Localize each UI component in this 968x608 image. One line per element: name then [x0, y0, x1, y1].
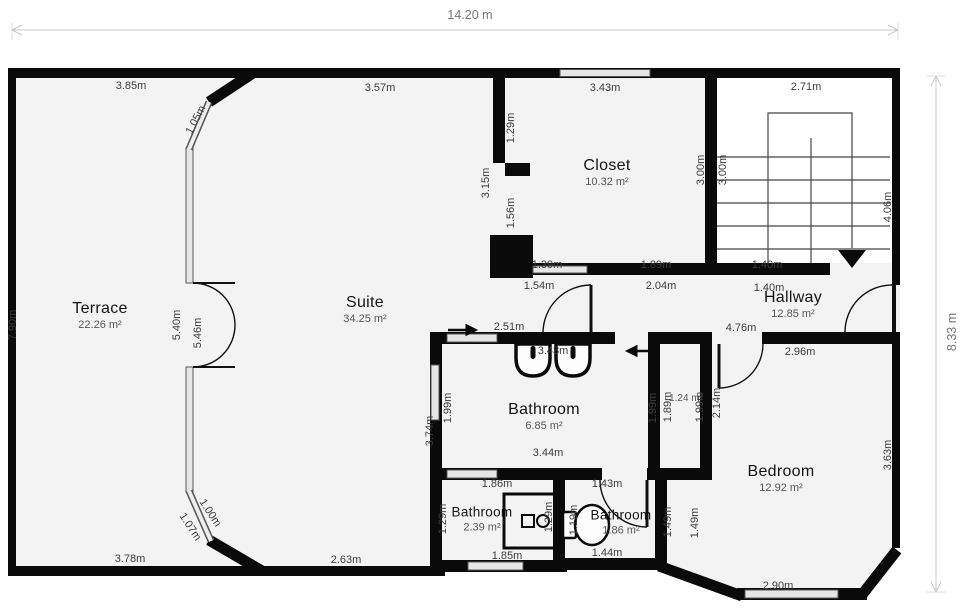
overall-width-label: 14.20 m [447, 8, 492, 22]
room-label-terrace: Terrace22.26 m² [72, 299, 127, 333]
wall [505, 163, 530, 176]
dimension-label: 3.85m [116, 80, 147, 92]
room-area: 6.85 m² [508, 420, 580, 434]
wall [8, 68, 258, 78]
wall [762, 332, 900, 344]
dimension-label: 1.85m [492, 550, 523, 562]
dimension-label: 1.29m [437, 504, 449, 535]
room-area: 12.92 m² [747, 482, 814, 496]
room-name: Suite [343, 293, 386, 313]
room-label-bathroom: Bathroom6.85 m² [508, 400, 580, 434]
dimension-label: 1.99m [647, 393, 659, 424]
dimension-label: 3.00m [717, 155, 729, 186]
faucet-icon [531, 346, 536, 359]
dimension-label: 3.43m [538, 345, 569, 357]
dimension-label: 1.39m [532, 259, 563, 271]
dimension-label: 2.14m [711, 388, 723, 419]
dimension-label: 3.74m [424, 416, 436, 447]
wall [255, 566, 445, 576]
dimension-label: 5.40m [171, 310, 183, 341]
dimension-label: 3.63m [882, 440, 894, 471]
room-label-closet: Closet10.32 m² [583, 156, 630, 190]
faucet-icon [571, 346, 576, 359]
wall [553, 558, 667, 570]
dimension-label: 2.63m [331, 554, 362, 566]
dimension-label: 1.40m [754, 282, 785, 294]
room-name: Terrace [72, 299, 127, 319]
dimension-label: 1.86m [482, 478, 513, 490]
dimension-label: 1.89m [641, 259, 672, 271]
dimension-label: 1.19m [568, 505, 580, 536]
dimension-label: 3.78m [115, 553, 146, 565]
window [560, 70, 650, 77]
dimension-label: 4.76m [726, 322, 757, 334]
room-area: 34.25 m² [343, 313, 386, 327]
dimension-label: 2.04m [646, 280, 677, 292]
dimension-label: 1.99m [442, 393, 454, 424]
room-name: Bedroom [747, 462, 814, 482]
dimension-label: 3.15m [480, 168, 492, 199]
window [468, 562, 523, 570]
dimension-label: 1.29m [543, 502, 555, 533]
dimension-label: 2.51m [494, 321, 525, 333]
dimension-label: 3.57m [365, 82, 396, 94]
window-wall [186, 148, 193, 283]
dimension-label: 3.43m [590, 82, 621, 94]
dimension-label: 1.99m [694, 392, 706, 423]
dimension-label: 4.06m [882, 192, 894, 223]
dimension-label: 1.43m [592, 478, 623, 490]
dimension-label: 1.44m [592, 547, 623, 559]
dimension-label: 2.90m [763, 580, 794, 592]
room-area: 1.86 m² [591, 525, 652, 539]
room-name: Bathroom [452, 505, 513, 522]
dimension-label: 3.44m [533, 447, 564, 459]
room-area: 12.85 m² [764, 308, 822, 322]
wall [493, 78, 505, 163]
window-wall [186, 367, 193, 492]
dimension-label: 1.40m [752, 259, 783, 271]
stairwell-floor [717, 78, 892, 263]
dimension-label: 1.89m [662, 392, 674, 423]
dimension-label: 1.49m [689, 508, 701, 539]
room-label-bedroom: Bedroom12.92 m² [747, 462, 814, 496]
dimension-label: 1.54m [524, 280, 555, 292]
room-label-suite: Suite34.25 m² [343, 293, 386, 327]
room-name: Bathroom [591, 508, 652, 525]
room-name: Bathroom [508, 400, 580, 420]
dimension-label: 2.71m [791, 81, 822, 93]
dimension-label: 3.00m [695, 155, 707, 186]
overall-height-label: 8.33 m [945, 313, 959, 351]
dimension-label: 1.29m [505, 113, 517, 144]
window [447, 334, 497, 342]
room-area: 2.39 m² [452, 522, 513, 536]
dimension-label: 1.56m [505, 198, 517, 229]
window [447, 470, 497, 478]
wall [705, 68, 900, 78]
room-area: 22.26 m² [72, 319, 127, 333]
dimension-label: 5.46m [192, 318, 204, 349]
dimension-label: 2.96m [785, 346, 816, 358]
window [431, 365, 439, 420]
wall [892, 68, 900, 285]
room-label-bathroom: Bathroom2.39 m² [452, 505, 513, 536]
room-label-bathroom: Bathroom1.86 m² [591, 508, 652, 539]
floorplan-canvas: 14.20 m 8.33 m 3.85m3.57m3.43m2.71m1.05m… [0, 0, 968, 608]
dimension-label: 7.90m [7, 310, 19, 341]
wall [8, 566, 260, 576]
dimension-label: 1.49m [662, 507, 674, 538]
room-area: 10.32 m² [583, 176, 630, 190]
room-name: Closet [583, 156, 630, 176]
